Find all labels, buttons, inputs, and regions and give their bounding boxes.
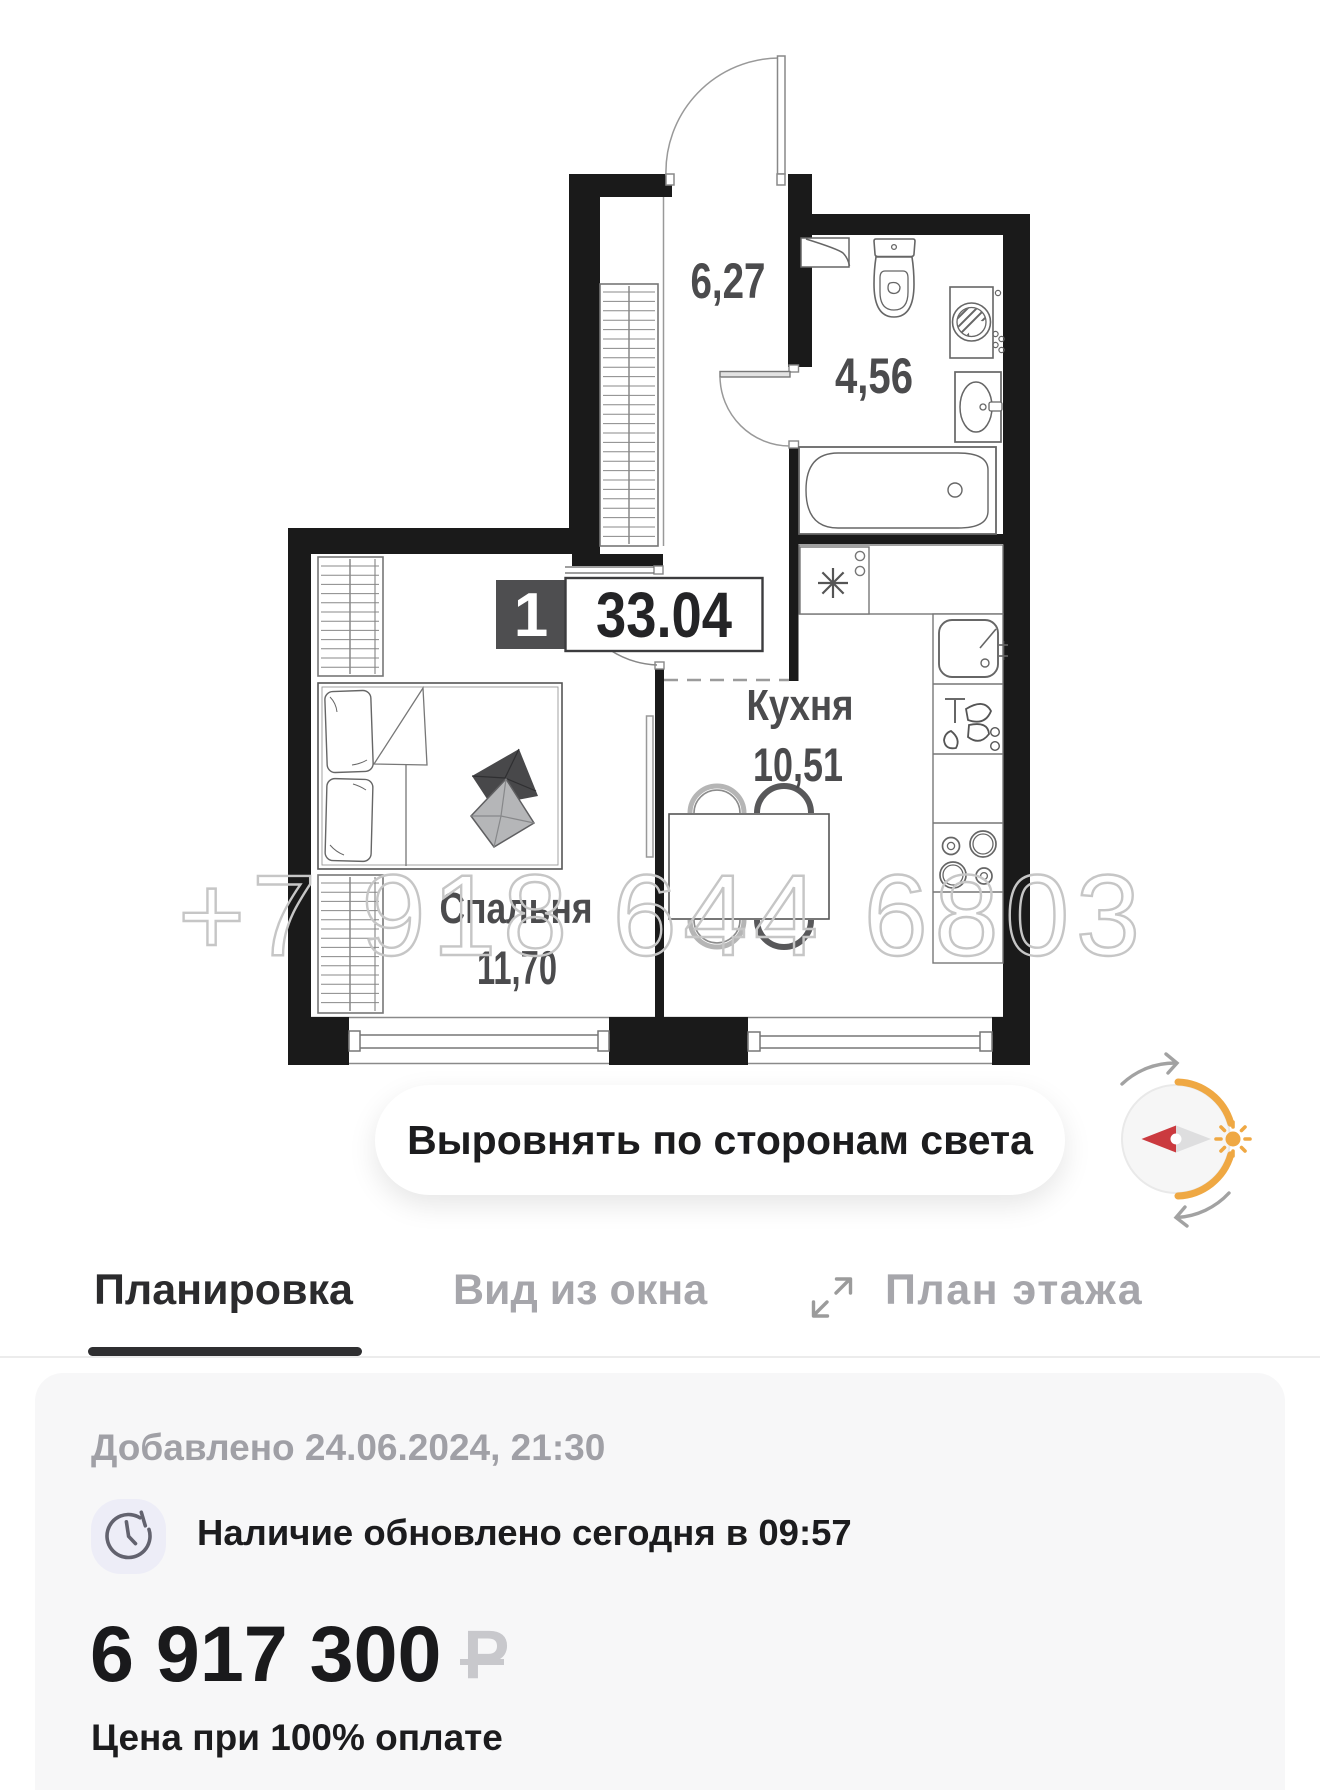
svg-text:+7 918 644 6803: +7 918 644 6803	[178, 852, 1140, 980]
svg-text:Кухня: Кухня	[747, 681, 854, 730]
svg-text:33.04: 33.04	[596, 579, 732, 651]
svg-text:6,27: 6,27	[691, 253, 766, 309]
svg-text:4,56: 4,56	[835, 348, 913, 404]
svg-text:10,51: 10,51	[753, 738, 843, 791]
svg-text:1: 1	[514, 581, 548, 650]
